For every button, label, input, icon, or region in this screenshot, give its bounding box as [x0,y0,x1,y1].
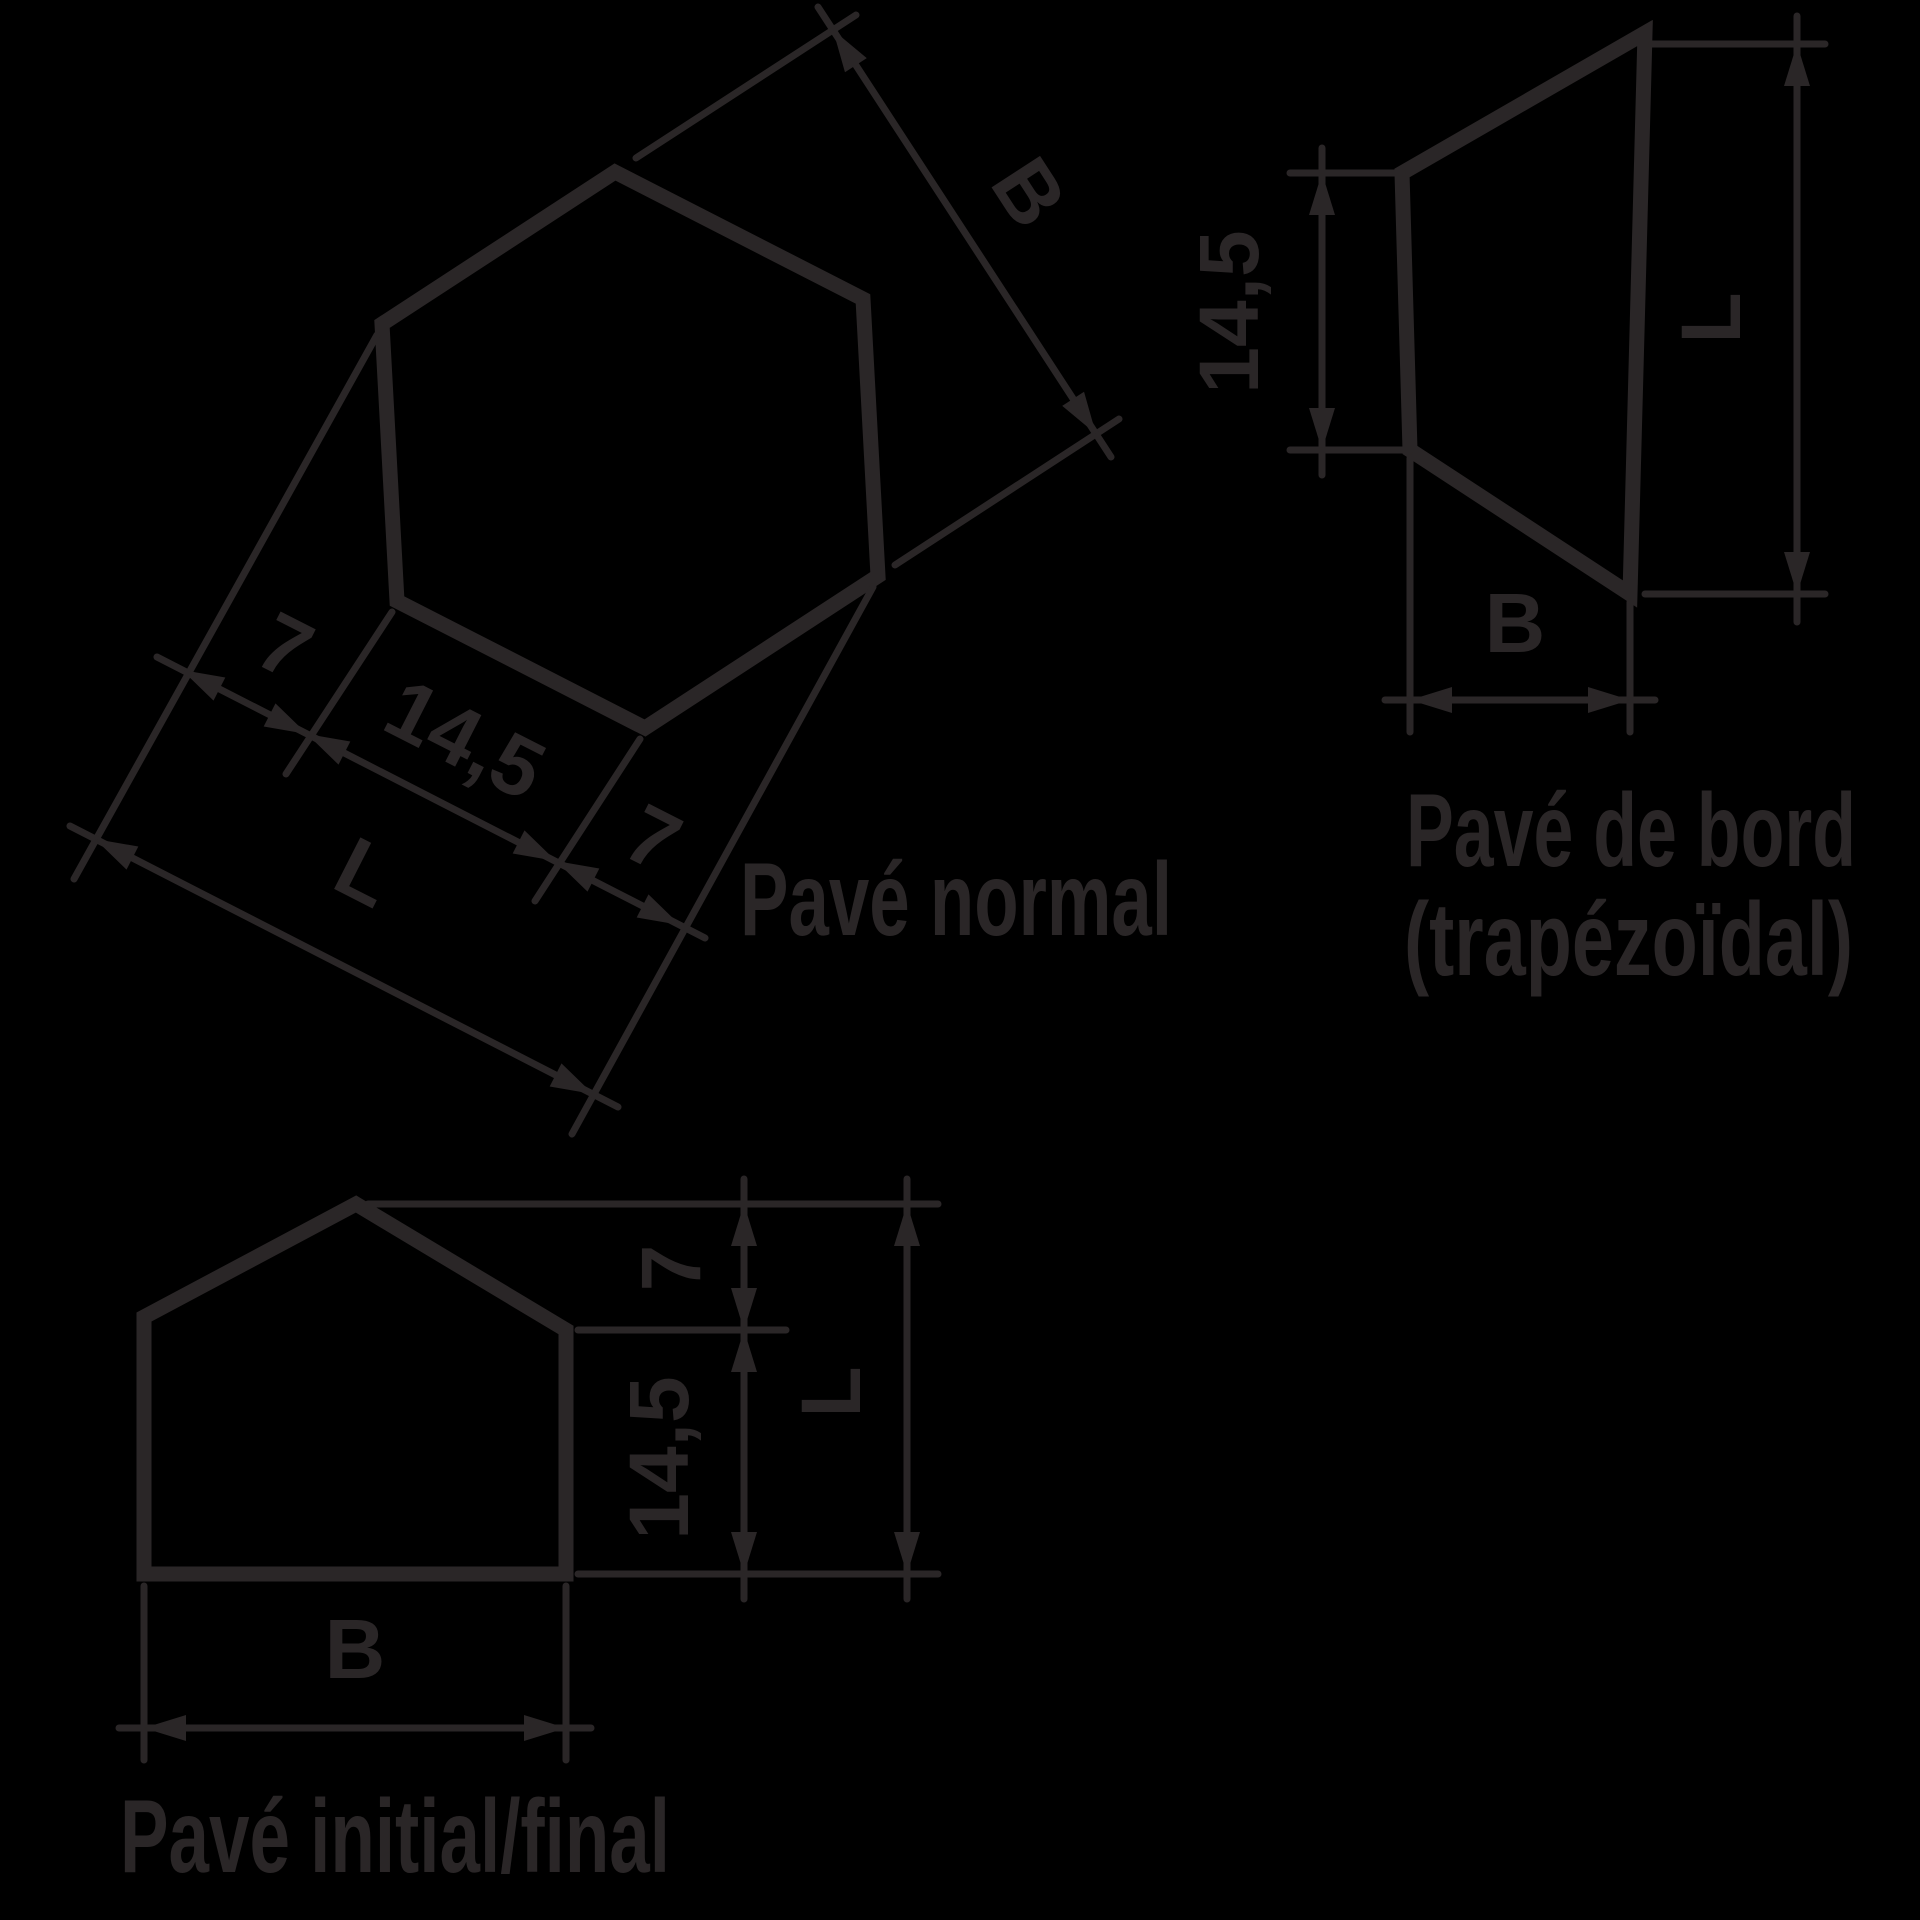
arrowhead [731,1532,757,1574]
drawing-canvas: B 7 14,5 7 L Pavé normal 14,5 L B Pavé d… [0,0,1920,1920]
dim-label-total: L [321,819,409,926]
pentagon-outline [144,1204,566,1574]
caption-pave-bord-line1: Pavé de bord [1406,773,1856,889]
arrowhead [1309,173,1335,215]
arrowhead [1784,44,1810,86]
dim-label-bottom: B [1485,576,1546,670]
arrowhead [894,1532,920,1574]
arrowhead [1784,552,1810,594]
caption-pave-normal: Pavé normal [740,842,1172,958]
caption-pave-bord-line2: (trapézoïdal) [1404,882,1853,998]
hexagon-outline [382,172,878,728]
pave-initial-diagram: 7 14,5 L B Pavé initial/final [119,1179,938,1895]
arrowhead [524,1715,566,1741]
extension-line [74,335,377,879]
arrowhead [637,894,686,936]
dim-label-seg2: 14,5 [612,1376,706,1540]
arrowhead [731,1330,757,1372]
pave-normal-diagram: B 7 14,5 7 L Pavé normal [70,7,1172,1134]
dim-label-b: B [973,141,1085,243]
technical-drawing: B 7 14,5 7 L Pavé normal 14,5 L B Pavé d… [0,0,1920,1920]
dim-label-right: L [1664,292,1758,343]
extension-line [636,15,856,158]
dim-label-total: L [784,1366,878,1417]
arrowhead [1410,687,1452,713]
dim-label-seg3: 7 [611,786,695,891]
extension-line [895,419,1119,565]
caption-pave-initial: Pavé initial/final [120,1779,670,1895]
arrowhead [731,1288,757,1330]
arrowhead [894,1204,920,1246]
trapezoid-outline [1402,33,1645,594]
dim-label-seg2: 14,5 [371,660,559,818]
pave-bord-diagram: 14,5 L B Pavé de bord (trapézoïdal) [1182,16,1856,998]
arrowhead [1588,687,1630,713]
dim-label-left: 14,5 [1182,230,1276,394]
arrowhead [731,1204,757,1246]
arrowhead [1309,408,1335,450]
dim-label-seg1: 7 [624,1245,718,1292]
dim-label-bottom: B [325,1602,386,1696]
arrowhead [144,1715,186,1741]
dim-label-seg1: 7 [243,594,327,699]
